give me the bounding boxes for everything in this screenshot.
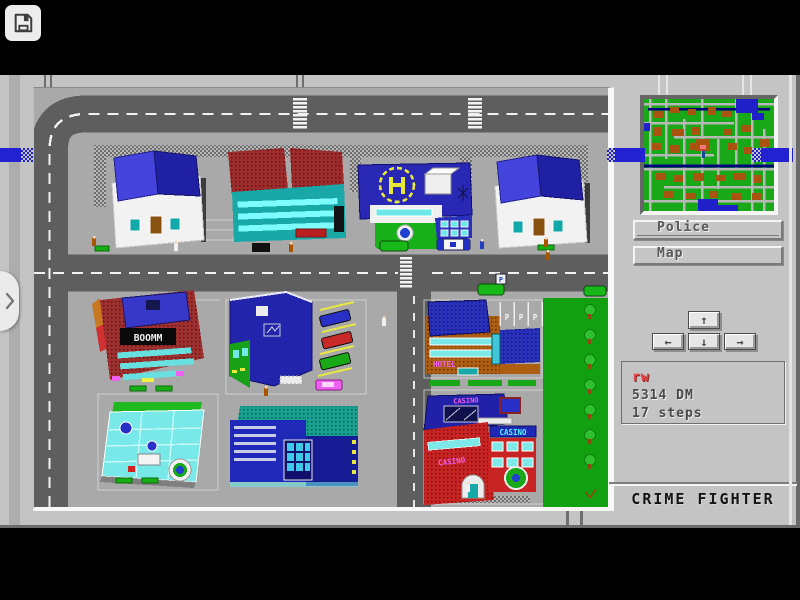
blue-band-far-dither bbox=[752, 148, 761, 162]
building-bank-east[interactable] bbox=[495, 155, 590, 248]
police-button[interactable]: Police bbox=[633, 220, 783, 240]
blue-band-right-dither bbox=[607, 148, 615, 162]
city-viewport[interactable]: BOOMM bbox=[33, 87, 614, 511]
building-police-station[interactable] bbox=[358, 163, 472, 250]
game-screen: BOOMM bbox=[0, 75, 800, 528]
svg-text:P: P bbox=[519, 313, 524, 322]
road-stub bbox=[566, 511, 569, 525]
hotel-sign: HOTEL bbox=[433, 360, 456, 369]
save-button[interactable] bbox=[5, 5, 41, 41]
green-strips bbox=[430, 380, 536, 386]
move-right-button[interactable]: → bbox=[724, 333, 756, 350]
svg-text:P: P bbox=[505, 313, 510, 322]
blue-band-left bbox=[0, 148, 21, 162]
chevron-right-icon bbox=[2, 288, 18, 314]
road-stub bbox=[580, 511, 583, 525]
fountain bbox=[505, 467, 527, 489]
arrow-right-icon: → bbox=[736, 336, 743, 348]
road-stub bbox=[50, 75, 52, 87]
road-stub bbox=[658, 75, 660, 97]
status-panel: rw 5314 DM 17 steps bbox=[621, 361, 785, 424]
map-button-label: Map bbox=[635, 248, 781, 260]
road-stub bbox=[296, 75, 298, 87]
city-map: BOOMM bbox=[34, 88, 608, 507]
building-blue-teal[interactable] bbox=[230, 406, 358, 487]
svg-text:P: P bbox=[499, 276, 503, 284]
sidebar-divider bbox=[609, 482, 797, 486]
emulator-stage: BOOMM bbox=[0, 0, 800, 600]
park bbox=[543, 298, 608, 507]
casino-roof-sign: CASINO bbox=[453, 396, 479, 405]
screen-edge-highlight bbox=[789, 75, 792, 525]
road-stub bbox=[44, 75, 46, 87]
move-up-button[interactable]: ↑ bbox=[688, 311, 720, 329]
road-stub bbox=[302, 75, 304, 87]
player-name: rw bbox=[632, 369, 784, 387]
game-title: CRIME FIGHTER bbox=[606, 490, 800, 508]
casino-marquee-sign: CASINO bbox=[499, 428, 527, 437]
road-stub bbox=[750, 75, 752, 97]
move-down-button[interactable]: ↓ bbox=[688, 333, 720, 350]
hotel-parking: P P P bbox=[500, 302, 542, 326]
parking-sign: P bbox=[496, 274, 506, 284]
building-office[interactable] bbox=[230, 292, 312, 388]
money-value: 5314 DM bbox=[632, 387, 784, 405]
road-stub bbox=[742, 75, 744, 97]
police-button-label: Police bbox=[635, 222, 781, 234]
map-button[interactable]: Map bbox=[633, 246, 783, 265]
arrow-up-icon: ↑ bbox=[700, 314, 707, 326]
drawer-toggle[interactable] bbox=[0, 271, 19, 331]
building-bank-west[interactable] bbox=[112, 151, 206, 248]
disco-sign: BOOMM bbox=[134, 333, 163, 344]
steps-value: 17 steps bbox=[632, 405, 784, 423]
police-car bbox=[437, 239, 470, 250]
blue-band-right bbox=[615, 148, 645, 162]
blue-band-left-dither bbox=[21, 148, 33, 162]
arrow-left-icon: ← bbox=[664, 336, 671, 348]
move-left-button[interactable]: ← bbox=[652, 333, 684, 350]
svg-text:P: P bbox=[533, 313, 538, 322]
road-stub bbox=[666, 75, 668, 97]
arrow-down-icon: ↓ bbox=[700, 336, 707, 348]
floppy-disk-icon bbox=[12, 12, 34, 34]
fountain bbox=[169, 459, 191, 481]
